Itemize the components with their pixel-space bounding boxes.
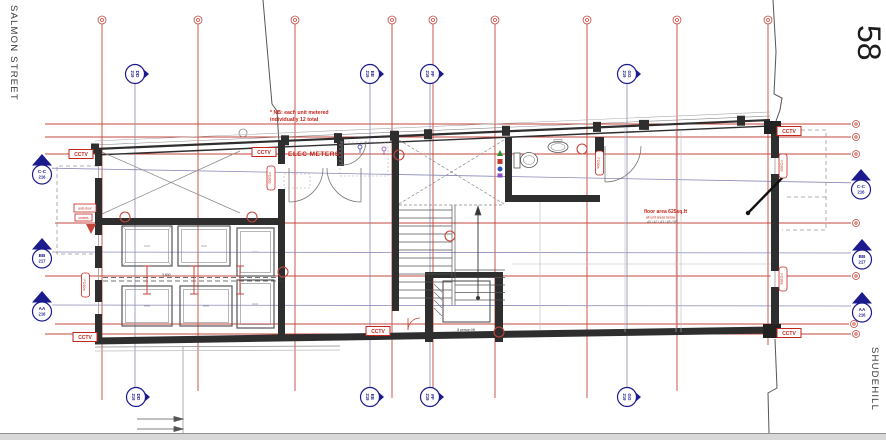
street-name-salmon: SALMON STREET: [8, 5, 19, 101]
cctv-tag: CCTV: [252, 148, 276, 157]
svg-text:CCTV: CCTV: [78, 335, 92, 341]
svg-text:FD30s: FD30s: [82, 279, 86, 290]
parking-dimension: 3,600: [162, 273, 171, 277]
elec-meters-label: ELEC METERS: [288, 151, 340, 158]
building-walls: [91, 112, 781, 351]
socket-symbol: [358, 145, 362, 149]
red-grid-lines: [45, 24, 851, 400]
floor-plan-viewer[interactable]: C-C 216 BB 217 AA 216 C-C 216 BB 217 AA …: [0, 0, 886, 440]
svg-text:219: 219: [425, 394, 430, 402]
svg-text:C-C: C-C: [857, 184, 866, 189]
store-bay: [178, 226, 230, 266]
svg-text:auto door: auto door: [78, 207, 92, 211]
section-marker-gg-top: GG 219: [618, 64, 642, 84]
electrical-symbols: [358, 145, 503, 178]
svg-text:216: 216: [39, 312, 47, 317]
svg-text:219: 219: [365, 71, 370, 79]
svg-text:FD30s: FD30s: [596, 157, 600, 168]
toilet-cistern: [514, 153, 520, 168]
section-marker-dd-top: DD 219: [126, 64, 150, 84]
auto-door-tag: auto door: [74, 204, 96, 212]
floor-plan-drawing: C-C 216 BB 217 AA 216 C-C 216 BB 217 AA …: [0, 0, 886, 440]
section-marker-aa-left: AA 216: [32, 291, 52, 321]
alarm-triangle: [86, 224, 96, 234]
fire-door-tag: FD30s: [82, 273, 90, 297]
svg-text:AA: AA: [39, 306, 46, 311]
stair-core: [399, 140, 505, 305]
fire-door-tag: FD30s: [779, 154, 787, 178]
cctv-tag: CCTV: [777, 329, 801, 338]
section-marker-cc-right: C-C 216: [851, 169, 871, 199]
svg-text:CCTV: CCTV: [371, 329, 385, 335]
svg-text:219: 219: [425, 71, 430, 79]
store-bay: [122, 226, 172, 266]
section-marker-ff-top: FF 219: [421, 64, 445, 84]
nb-note-line2: individually 12 total: [270, 117, 319, 123]
grid-bubbles-top: [98, 16, 772, 24]
toilet-bowl: [521, 153, 538, 168]
switch-symbol-green: [497, 150, 503, 156]
svg-text:219: 219: [130, 71, 135, 79]
void-cross-lines: [102, 151, 240, 214]
svg-text:216: 216: [39, 175, 47, 180]
store-bay: [237, 280, 274, 328]
cctv-tag: CCTV: [777, 127, 801, 136]
svg-text:BB: BB: [39, 253, 46, 258]
floor-area-line1: floor area 625sq.ft: [644, 209, 687, 215]
svg-text:219: 219: [365, 394, 370, 402]
svg-text:217: 217: [39, 259, 47, 264]
section-marker-ee-bottom: EE 219: [361, 387, 385, 407]
street-name-shudehill: SHUDEHILL: [869, 347, 880, 411]
section-marker-ee-top: EE 219: [361, 64, 385, 84]
switch-symbol-blue: [498, 167, 503, 172]
building-number: 58: [851, 25, 886, 61]
manhole-circle: [239, 129, 247, 137]
svg-text:comms: comms: [78, 216, 89, 220]
svg-text:FD30s: FD30s: [780, 273, 784, 284]
camera-rings: [120, 144, 587, 337]
store-bay: [180, 286, 232, 326]
fire-door-tag: FD30s: [779, 267, 787, 291]
nb-note-line1: * NB: each unit metered: [270, 110, 329, 116]
section-marker-gg-bottom: GG 219: [618, 387, 642, 407]
svg-text:CCTV: CCTV: [782, 129, 796, 135]
svg-text:BB: BB: [859, 254, 866, 259]
socket-symbol: [382, 147, 386, 151]
switch-symbol-purple: [498, 174, 503, 178]
svg-text:FD30s: FD30s: [268, 172, 272, 183]
comms-tag: comms: [75, 214, 92, 221]
svg-text:217: 217: [859, 260, 867, 265]
svg-text:CCTV: CCTV: [257, 150, 271, 156]
svg-text:219: 219: [622, 394, 627, 402]
svg-text:C-C: C-C: [38, 169, 47, 174]
cctv-tag: CCTV: [69, 150, 93, 159]
dimension-arrows: [137, 417, 183, 432]
svg-text:CCTV: CCTV: [74, 152, 88, 158]
section-marker-bb-left: BB 217: [32, 238, 52, 268]
floor-area-line2: all unit areas below: [646, 216, 676, 220]
section-marker-ff-bottom: FF 219: [421, 387, 445, 407]
viewer-scrollbar[interactable]: [0, 433, 886, 440]
lift-label: 8 person lift: [457, 328, 475, 332]
svg-text:216: 216: [858, 190, 866, 195]
svg-text:CCTV: CCTV: [782, 331, 796, 337]
cctv-tag: CCTV: [73, 333, 97, 342]
fire-door-tag: FD30s: [596, 151, 604, 175]
section-marker-bb-right: BB 217: [852, 239, 872, 269]
floor-area-line3: 40 / 42 / 43 / 45 / 50: [647, 220, 677, 224]
svg-text:216: 216: [859, 313, 867, 318]
cctv-tag: CCTV: [366, 327, 390, 336]
svg-text:219: 219: [622, 71, 627, 79]
section-marker-aa-right: AA 216: [852, 292, 872, 322]
section-marker-cc-left: C-C 216: [32, 154, 52, 184]
section-marker-dd-bottom: DD 219: [127, 387, 151, 407]
fire-door-tag: FD30s: [267, 166, 275, 190]
svg-text:FD30s: FD30s: [780, 160, 784, 171]
svg-text:AA: AA: [859, 307, 866, 312]
switch-symbol-red: [498, 159, 503, 164]
svg-text:219: 219: [131, 394, 136, 402]
construction-lines: [512, 128, 771, 332]
